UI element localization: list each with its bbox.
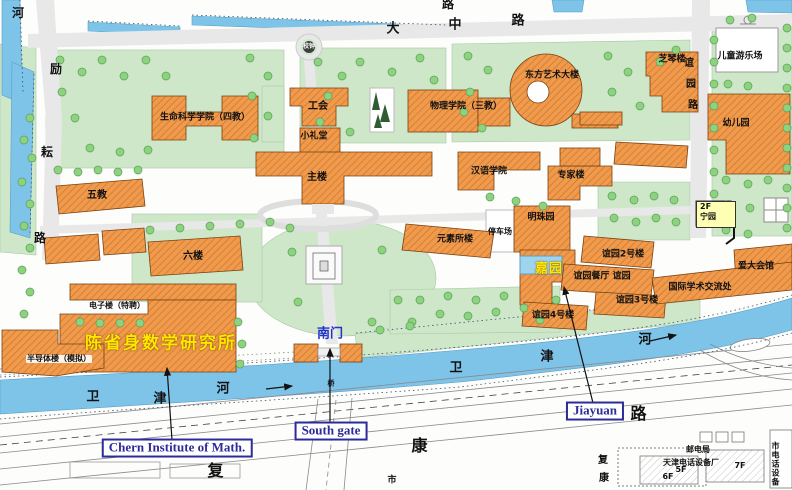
label-yiyuan2: 谊园2号楼 (602, 251, 644, 260)
road-left-char1: 励 (50, 63, 62, 75)
road-fukang-char3: 路 (630, 406, 647, 422)
road-dazhong-char1: 大 (386, 23, 399, 36)
map-graphic (0, 0, 792, 490)
label-yiyuan3: 谊园3号楼 (616, 297, 658, 306)
label-playground: 儿童游乐场 (717, 53, 762, 62)
river-weijin-west-char3: 河 (216, 383, 229, 396)
label-life-science: 生命科学学院（四教） (160, 114, 250, 123)
road-top-lu: 路 (442, 0, 454, 10)
label-no5-teaching: 五教 (87, 191, 107, 201)
river-weijin-west-char2: 津 (153, 393, 166, 406)
label-physics: 物理学院（三教） (430, 103, 502, 112)
river-weijin-west-char1: 卫 (86, 391, 99, 404)
label-experts-building: 专家楼 (557, 172, 584, 181)
label-chern-institute-cn[interactable]: 陈省身数学研究所 (85, 336, 237, 353)
label-floor-5f: 5F (675, 466, 686, 474)
ningyuan-floor: 2F (700, 202, 735, 212)
label-no6-building: 六楼 (183, 252, 203, 262)
label-labor-union: 工会 (308, 102, 328, 112)
river-weijin-east-char3: 河 (638, 334, 651, 347)
chern-institute-callout[interactable]: Chern Institute of Math. (102, 439, 253, 458)
label-telephone-factory: 天津电话设备厂 (663, 459, 719, 467)
road-dazhong-char2: 中 (448, 19, 461, 32)
label-hanyu-college: 汉语学院 (471, 168, 507, 177)
road-dazhong-char3: 路 (511, 15, 524, 28)
label-post-office: 邮电局 (686, 446, 710, 454)
label-floor-6f: 6F (662, 473, 673, 481)
road-fukang-char1: 复 (207, 463, 224, 479)
label-kindergarten: 幼儿园 (722, 120, 749, 129)
road-yiyuan-char2: 园 (686, 80, 696, 90)
river-weijin-east-char2: 津 (540, 351, 553, 364)
label-semiconductor: 半导体楼（模拟） (26, 355, 92, 363)
label-jiayuan-cn[interactable]: 嘉园 (535, 263, 563, 276)
label-bridge: 桥 (328, 381, 335, 388)
label-aida-hall: 爱大会馆 (738, 263, 774, 272)
label-school-bell: 校钟 (303, 44, 315, 50)
label-floor-7f: 7F (734, 462, 745, 470)
label-left-river: 河 (12, 7, 24, 19)
road-fukang-char2: 康 (411, 438, 428, 454)
label-oriental-art: 东方艺术大楼 (525, 72, 579, 81)
label-electronics: 电子楼（特聘） (88, 302, 146, 310)
road-left-char2: 耘 (41, 146, 53, 158)
label-south-gate-cn[interactable]: 南门 (317, 328, 343, 341)
label-main-building: 主楼 (307, 173, 327, 183)
label-small-auditorium: 小礼堂 (300, 133, 327, 142)
label-yiyuan-canteen: 谊园餐厅 谊园 (573, 273, 630, 282)
south-gate-callout[interactable]: South gate (295, 422, 368, 441)
ningyuan-box: 2F 宁园 (696, 201, 736, 228)
road-yiyuan-char1: 谊 (684, 59, 694, 69)
road-yiyuan-char3: 路 (688, 101, 698, 111)
label-right-vertical: 市电话设备 (771, 442, 779, 487)
road-fukang-small-char1: 复 (598, 456, 608, 466)
label-intl-academic: 国际学术交流处 (668, 284, 731, 293)
ningyuan-name: 宁园 (700, 212, 735, 222)
road-left-char3: 路 (34, 232, 46, 244)
river-weijin-east-char1: 卫 (449, 362, 462, 375)
label-zhiqin: 芝琴楼 (658, 56, 685, 65)
road-shi: 市 (387, 477, 396, 486)
label-yiyuan4: 谊园4号楼 (532, 312, 574, 321)
label-parking: 停车场 (488, 228, 512, 236)
campus-map: 生命科学学院（四教） 工会 小礼堂 物理学院（三教） 东方艺术大楼 芝琴楼 儿童… (0, 0, 792, 490)
label-yuansuo: 元素所楼 (437, 236, 473, 245)
jiayuan-callout[interactable]: Jiayuan (566, 402, 624, 421)
road-fukang-small-char2: 康 (599, 474, 609, 484)
label-mingzhu: 明珠园 (527, 214, 554, 223)
